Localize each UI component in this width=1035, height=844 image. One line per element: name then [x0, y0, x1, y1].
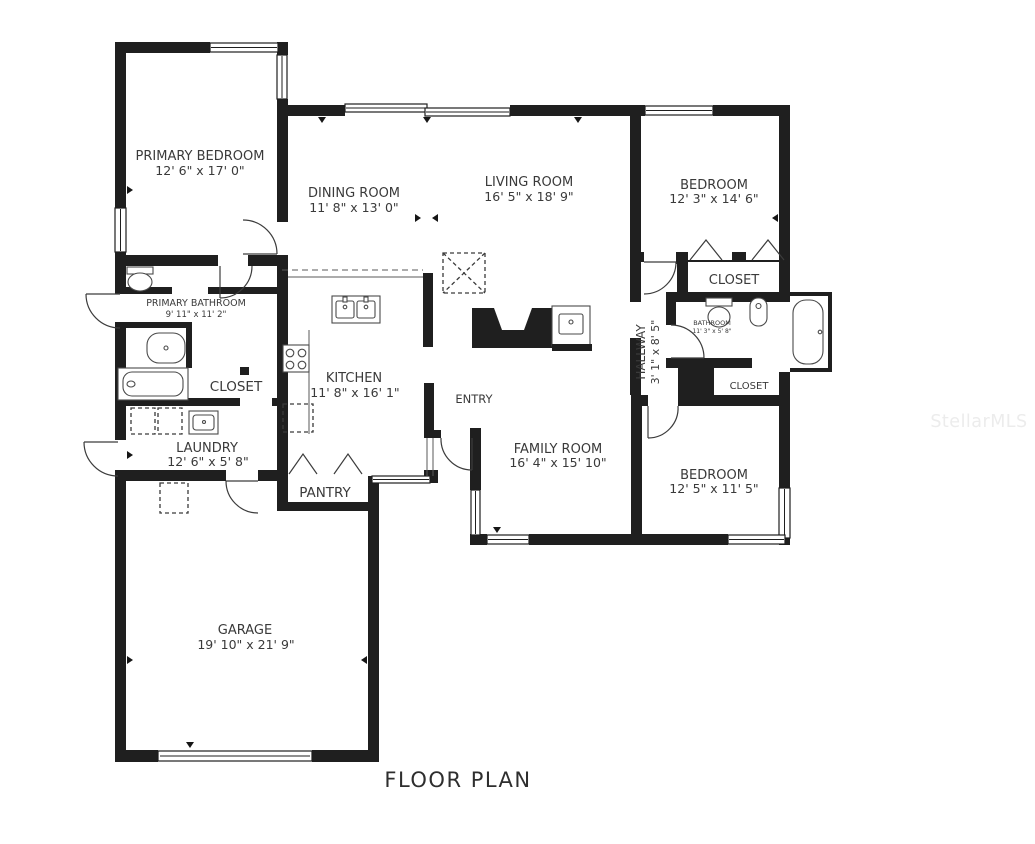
- room-label-primary-bedroom: PRIMARY BEDROOM 12' 6" x 17' 0": [136, 149, 265, 178]
- garage-appliance-icon: [160, 483, 188, 513]
- stove-icon: [283, 345, 309, 372]
- porch-sidelight: [372, 476, 430, 483]
- room-label-bedroom-top-right: BEDROOM 12' 3" x 14' 6": [669, 178, 758, 206]
- window: [645, 106, 713, 115]
- washer-icon: [131, 408, 155, 434]
- room-name: HALLWAY: [634, 324, 648, 380]
- garage-door: [158, 751, 312, 761]
- room-dims: 12' 5" x 11' 5": [669, 481, 758, 496]
- room-dims: 9' 11" x 11' 2": [166, 310, 227, 320]
- room-label-closet-top-right: CLOSET: [709, 273, 760, 288]
- door-exterior-laundry: [84, 442, 118, 476]
- fireplace-icon: [472, 306, 592, 351]
- room-dims: 12' 3" x 14' 6": [669, 191, 758, 206]
- room-dims: 11' 8" x 16' 1": [310, 385, 399, 400]
- room-dims: 12' 6" x 5' 8": [167, 454, 248, 469]
- room-label-hallway: HALLWAY 3' 1" x 8' 5": [634, 320, 662, 385]
- room-label-hall-closet: CLOSET: [730, 381, 770, 392]
- room-dims: 3' 1" x 8' 5": [649, 320, 662, 385]
- room-dims: 16' 5" x 18' 9": [484, 189, 573, 204]
- room-dims: 12' 6" x 17' 0": [155, 163, 244, 178]
- room-label-bedroom-bottom-right: BEDROOM 12' 5" x 11' 5": [669, 468, 758, 496]
- door-exterior-primary-bath: [86, 294, 120, 328]
- room-label-primary-closet: CLOSET: [210, 379, 263, 395]
- window: [277, 55, 287, 99]
- room-name: GARAGE: [218, 623, 272, 638]
- room-dims: 16' 4" x 15' 10": [509, 455, 606, 470]
- watermark: StellarMLS: [930, 412, 1027, 432]
- room-dims: 11' 3" x 5' 8": [692, 328, 731, 335]
- window: [471, 490, 480, 535]
- room-name: DINING ROOM: [308, 186, 400, 201]
- room-label-living-room: LIVING ROOM 16' 5" x 18' 9": [484, 175, 573, 204]
- room-label-family-room: FAMILY ROOM 16' 4" x 15' 10": [509, 442, 606, 470]
- door-bedroom-top-right: [644, 262, 676, 294]
- bifold-pantry: [289, 454, 362, 474]
- laundry-sink-icon: [189, 411, 218, 434]
- room-label-garage: GARAGE 19' 10" x 21' 9": [197, 623, 294, 652]
- door-laundry-to-garage: [226, 481, 258, 513]
- room-name: ENTRY: [455, 392, 493, 406]
- page-title: FLOOR PLAN: [384, 768, 531, 792]
- room-label-bathroom: BATHROOM 11' 3" x 5' 8": [692, 319, 731, 335]
- room-label-kitchen: KITCHEN 11' 8" x 16' 1": [310, 371, 399, 400]
- room-name: CLOSET: [709, 273, 760, 288]
- kitchen-island-sink-icon: [332, 296, 380, 323]
- door-primary-bedroom: [243, 220, 277, 254]
- room-name: PRIMARY BEDROOM: [136, 149, 265, 164]
- window: [728, 535, 785, 544]
- room-dims: 19' 10" x 21' 9": [197, 637, 294, 652]
- floor-plan-canvas: PRIMARY BEDROOM 12' 6" x 17' 0" DINING R…: [0, 0, 1035, 844]
- room-label-laundry: LAUNDRY 12' 6" x 5' 8": [167, 441, 248, 469]
- hall-bathtub-icon: [793, 300, 823, 364]
- room-name: LIVING ROOM: [485, 175, 573, 190]
- window: [425, 108, 510, 116]
- floor-plan-drawing: PRIMARY BEDROOM 12' 6" x 17' 0" DINING R…: [0, 0, 1035, 844]
- room-label-dining-room: DINING ROOM 11' 8" x 13' 0": [308, 186, 400, 215]
- window: [210, 43, 278, 52]
- window: [487, 535, 529, 544]
- window: [345, 104, 427, 112]
- room-name: BATHROOM: [693, 319, 731, 327]
- room-name: PRIMARY BATHROOM: [146, 298, 246, 309]
- hall-sink-icon: [750, 298, 767, 326]
- window: [779, 488, 790, 538]
- room-name: KITCHEN: [326, 371, 382, 386]
- shower-icon: [147, 333, 185, 363]
- dimension-arrows: [127, 117, 778, 748]
- door-bedroom-bottom-right: [648, 406, 678, 438]
- window: [115, 208, 126, 252]
- room-dims: 11' 8" x 13' 0": [309, 200, 398, 215]
- room-name: PANTRY: [299, 485, 351, 501]
- skylight-icon: [443, 253, 485, 293]
- door-front-entry: [441, 438, 472, 470]
- room-label-primary-bathroom: PRIMARY BATHROOM 9' 11" x 11' 2": [146, 298, 246, 320]
- room-label-entry: ENTRY: [455, 392, 493, 406]
- dryer-icon: [158, 408, 182, 434]
- toilet-icon: [127, 267, 153, 291]
- bathtub-icon: [118, 368, 188, 400]
- room-label-pantry: PANTRY: [299, 485, 351, 501]
- room-name: CLOSET: [210, 379, 263, 395]
- room-name: CLOSET: [730, 381, 770, 392]
